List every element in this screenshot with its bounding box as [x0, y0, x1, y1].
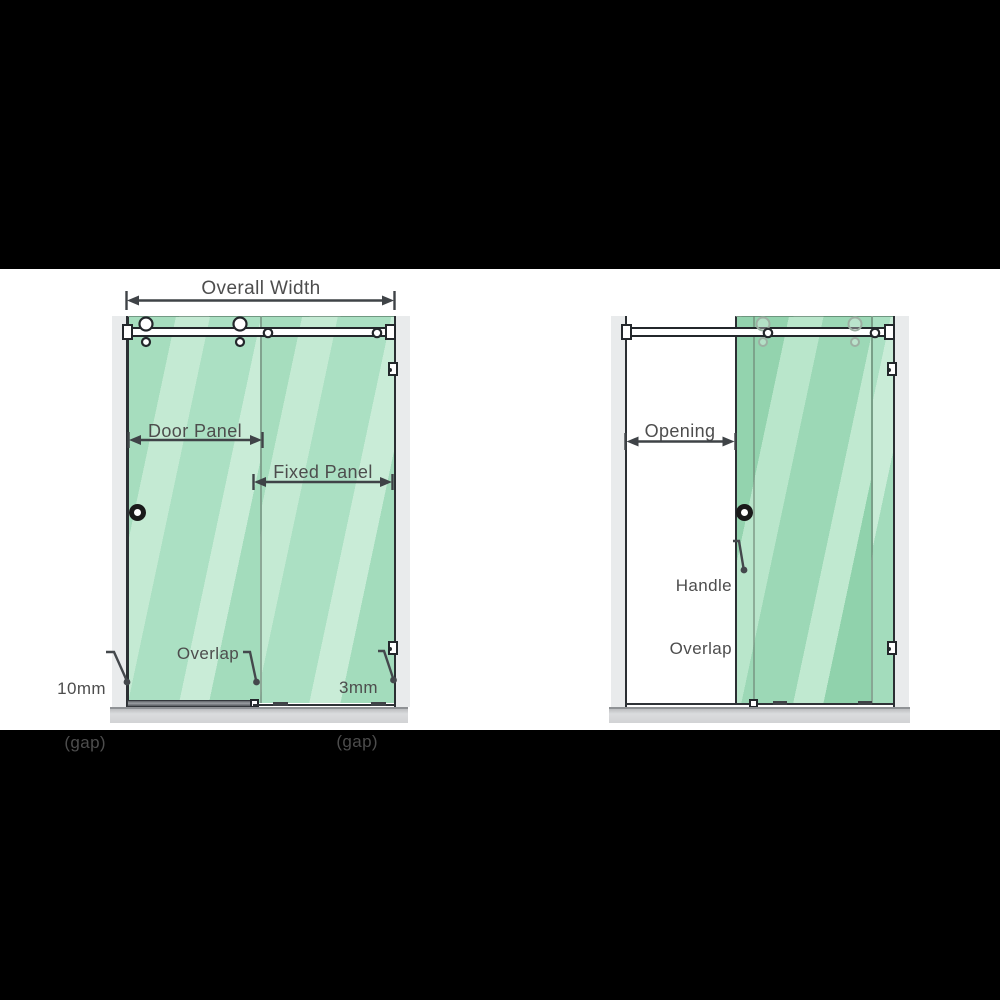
overlap-label: Overlap [171, 645, 245, 663]
left-diagram-wall-left [112, 316, 128, 707]
opening-label: Opening [625, 422, 735, 440]
door-floor-clip-right-open [858, 701, 872, 705]
rail-wall-bracket-right-open [884, 324, 895, 340]
handle-overlap-line1: Handle [650, 575, 732, 596]
gap-3mm-label: 3mm (gap) [320, 643, 378, 787]
fixed-panel-wall-clip-top [388, 362, 398, 376]
door-floor-clip-left-open [773, 701, 787, 705]
fixed-panel-edge-through-glass [753, 316, 755, 703]
sliding-rail-open [623, 327, 895, 337]
clip-bolt-icon [887, 368, 891, 372]
letterbox-bottom [0, 730, 1000, 1000]
clip-bolt-icon [388, 368, 392, 372]
diagram-canvas: Overall Width Door Panel Fixed Panel 10m… [0, 269, 1000, 730]
fixed-panel-floor-clip-left [273, 702, 288, 706]
floor-guide-track [625, 703, 893, 705]
clip-bolt-icon [388, 647, 392, 651]
gap-3mm-unit: (gap) [320, 733, 378, 751]
clip-bolt-icon [887, 647, 891, 651]
gap-10mm-value: 10mm [40, 680, 106, 698]
gap-10mm-unit: (gap) [40, 734, 106, 752]
door-handle-knob [129, 504, 146, 521]
gap-10mm-label: 10mm (gap) [40, 644, 106, 788]
door-handle-knob-open [736, 504, 753, 521]
rail-wall-bracket-right [385, 324, 396, 340]
screenshot-root: { "labels": { "left": { "overall_width":… [0, 0, 1000, 1000]
handle-overlap-label: Handle Overlap [650, 533, 732, 701]
shower-base-tray-open [609, 707, 910, 723]
letterbox-top [0, 0, 1000, 269]
handle-overlap-line2: Overlap [650, 638, 732, 659]
rail-wall-bracket-left-open [621, 324, 632, 340]
right-diagram-wall-left [611, 316, 627, 707]
gap-3mm-value: 3mm [320, 679, 378, 697]
fixed-panel-label: Fixed Panel [253, 463, 393, 481]
fixed-panel-wall-clip-top-open [887, 362, 897, 376]
door-panel-label: Door Panel [128, 422, 262, 440]
rail-wall-bracket-left [122, 324, 133, 340]
door-panel-glass-open [735, 316, 873, 703]
fixed-panel-wall-clip-bottom-open [887, 641, 897, 655]
fixed-panel-wall-clip-bottom [388, 641, 398, 655]
sliding-rail [124, 327, 396, 337]
door-bottom-seal [127, 700, 253, 707]
overall-width-label: Overall Width [126, 279, 396, 298]
